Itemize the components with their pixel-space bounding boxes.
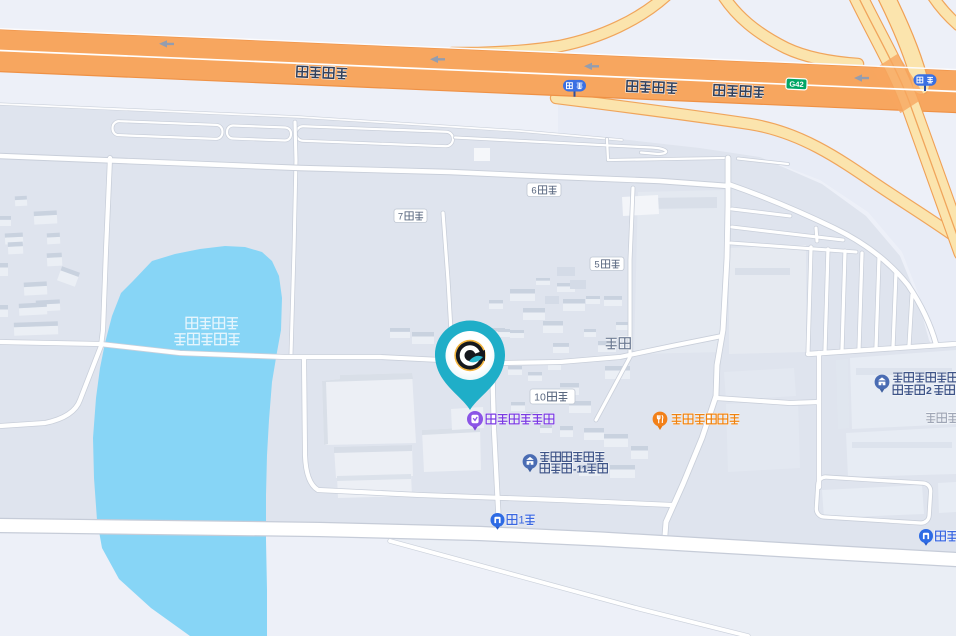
svg-text:10: 10	[534, 392, 546, 404]
svg-text:5: 5	[594, 260, 599, 271]
svg-text:G42: G42	[789, 79, 804, 89]
svg-text:1: 1	[519, 515, 525, 527]
svg-text:6: 6	[531, 186, 536, 197]
svg-text:2: 2	[926, 385, 932, 397]
svg-text:-11: -11	[573, 464, 588, 476]
svg-text:7: 7	[398, 212, 403, 223]
